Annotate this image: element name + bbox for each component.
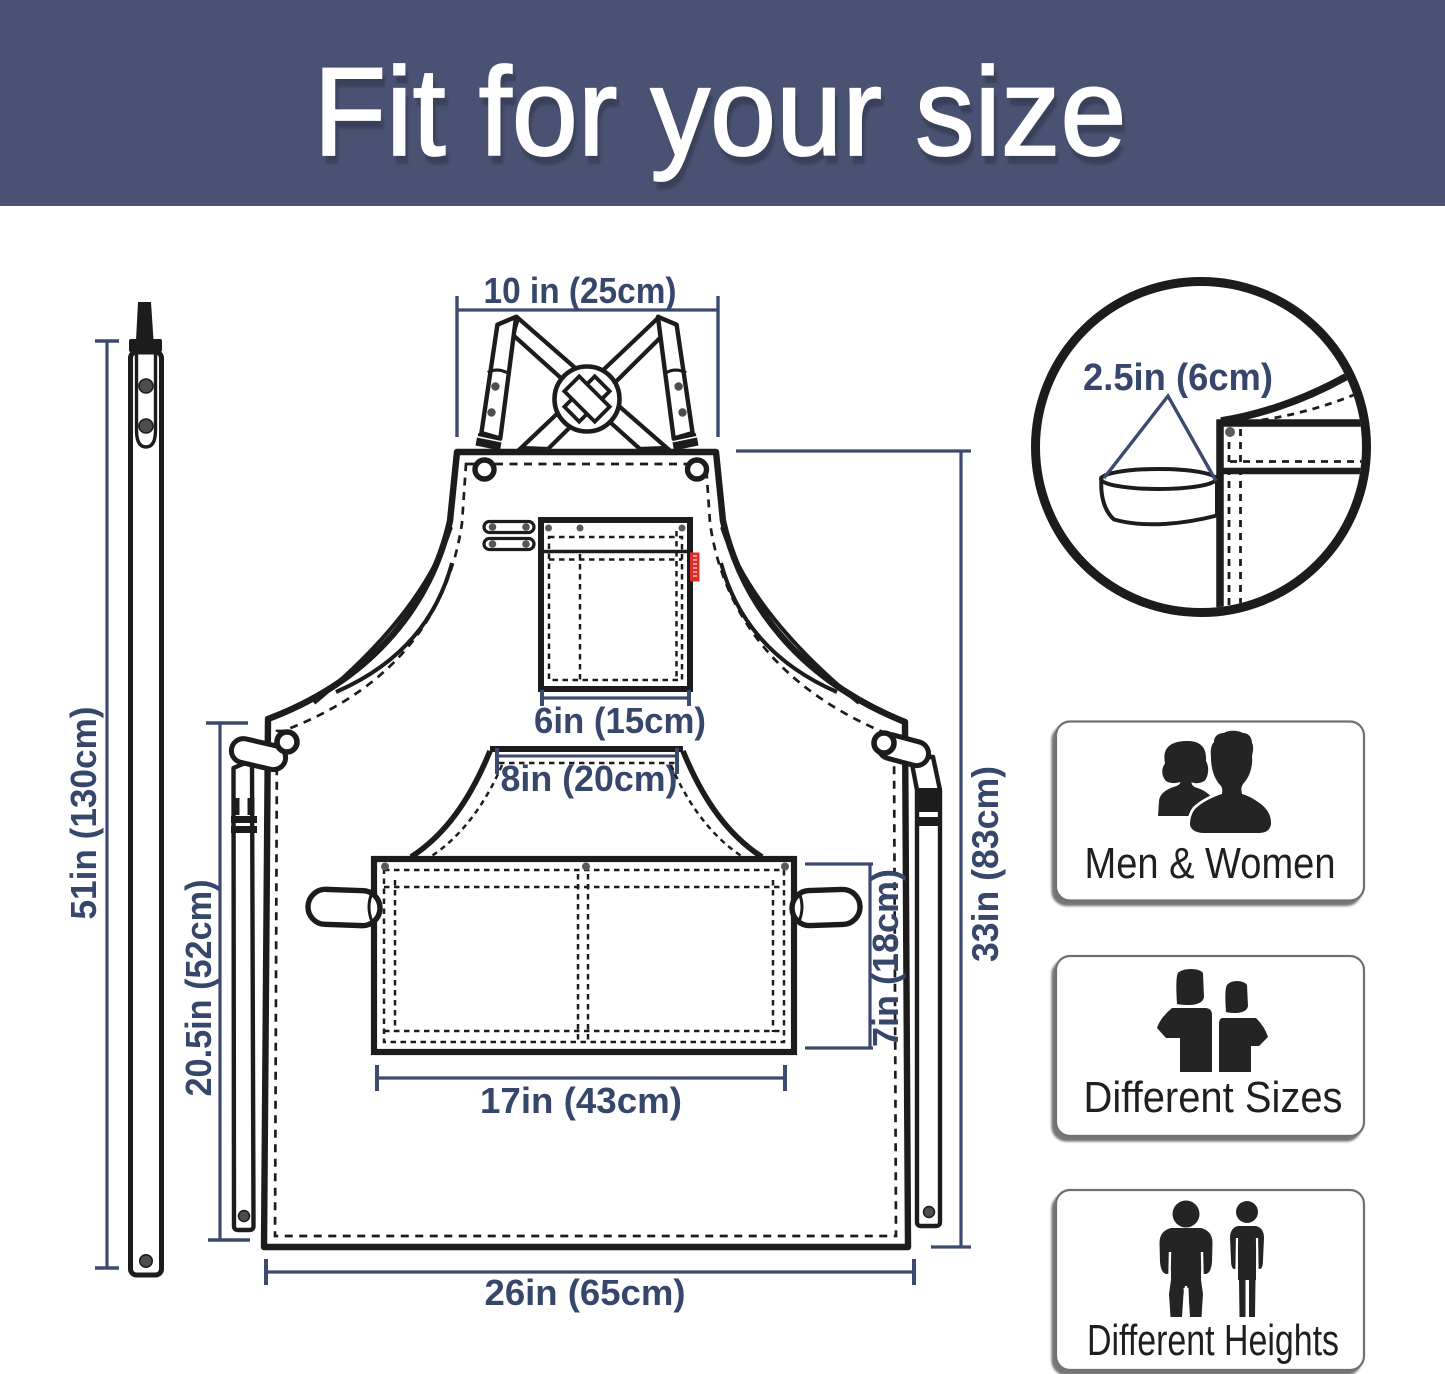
- svg-text:10 in (25cm): 10 in (25cm): [484, 270, 677, 311]
- svg-text:Different Heights: Different Heights: [1087, 1316, 1339, 1365]
- svg-text:20.5in (52cm): 20.5in (52cm): [178, 880, 219, 1097]
- svg-text:7in (18cm): 7in (18cm): [865, 869, 906, 1047]
- svg-text:26in (65cm): 26in (65cm): [485, 1272, 686, 1313]
- svg-text:2.5in (6cm): 2.5in (6cm): [1083, 357, 1273, 399]
- svg-text:51in (130cm): 51in (130cm): [63, 707, 104, 920]
- svg-text:6in (15cm): 6in (15cm): [534, 700, 706, 741]
- svg-text:Fit for your size: Fit for your size: [314, 43, 1127, 182]
- svg-text:33in (83cm): 33in (83cm): [965, 766, 1006, 962]
- svg-text:17in (43cm): 17in (43cm): [480, 1080, 682, 1121]
- svg-text:Men & Women: Men & Women: [1085, 839, 1336, 888]
- svg-text:8in (20cm): 8in (20cm): [501, 758, 678, 799]
- svg-text:Different Sizes: Different Sizes: [1084, 1073, 1343, 1122]
